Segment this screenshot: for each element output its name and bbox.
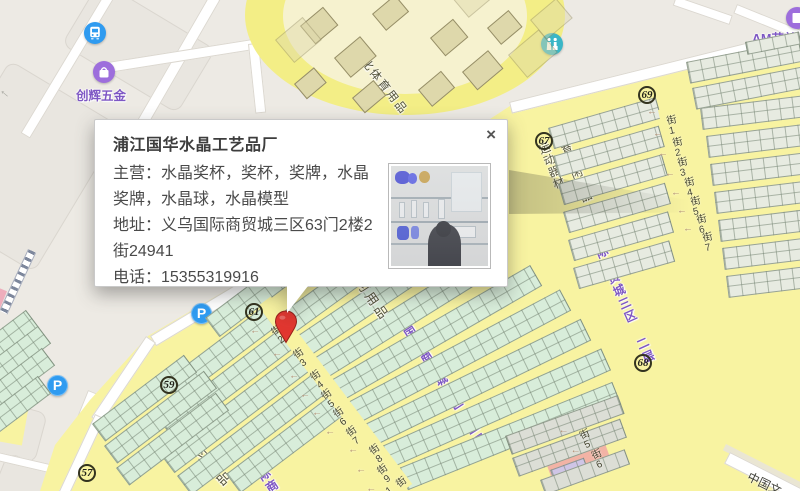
poi-label-hardware-store[interactable]: 创辉五金 xyxy=(76,85,126,104)
street-arrow-icon: ← xyxy=(300,389,311,400)
street-arrow-icon: ← xyxy=(289,370,300,381)
street-arrow-icon: ← xyxy=(272,348,283,359)
listing-photo[interactable] xyxy=(388,163,491,269)
gate-number: 67 xyxy=(535,132,553,150)
gate-number: 68 xyxy=(634,354,652,372)
hotel-icon[interactable] xyxy=(786,7,800,29)
street-arrow-icon: ← xyxy=(325,426,336,437)
street-arrow-icon: ← xyxy=(559,425,570,436)
street-arrow-icon: ← xyxy=(677,205,689,217)
street-arrow-icon: ← xyxy=(647,106,659,118)
bag-glyph xyxy=(93,61,115,83)
street-arrow-icon: ← xyxy=(356,464,367,475)
listing-title: 浦江国华水晶工艺品厂 xyxy=(113,131,491,155)
gate-number: 69 xyxy=(638,86,656,104)
close-icon[interactable]: × xyxy=(486,126,496,143)
info-window: 浦江国华水晶工艺品厂 × 主营：水晶奖杯，奖杯，奖牌，水晶奖牌，水晶球，水晶模型… xyxy=(94,119,508,287)
street-arrow-icon: ← xyxy=(312,407,323,418)
map-pin-icon[interactable] xyxy=(274,310,298,344)
listing-photo-image xyxy=(391,166,488,266)
listing-body: 主营：水晶奖杯，奖杯，奖牌，水晶奖牌，水晶球，水晶模型 地址：义乌国际商贸城三区… xyxy=(113,161,491,291)
street-arrow-icon: ← xyxy=(683,223,695,235)
road xyxy=(673,0,733,25)
street-arrow-icon: ← xyxy=(658,148,670,160)
listing-phone: 电话：15355319916 xyxy=(113,269,259,286)
street-arrow-icon: ← xyxy=(653,128,665,140)
map-canvas[interactable]: ← 文化体育用品 体育休闲用品 运动器材 办公学习用品 办公学习用品 国际商贸城… xyxy=(0,0,800,491)
hotel-glyph xyxy=(786,7,800,29)
gate-number: 61 xyxy=(245,303,263,321)
info-window-box: 浦江国华水晶工艺品厂 × 主营：水晶奖杯，奖杯，奖牌，水晶奖牌，水晶球，水晶模型… xyxy=(94,119,508,287)
info-window-pointer xyxy=(287,286,308,313)
street-arrow-icon: ← xyxy=(671,187,683,199)
listing-business: 主营：水晶奖杯，奖杯，奖牌，水晶奖牌，水晶球，水晶模型 xyxy=(113,165,369,208)
street-arrow-icon: ← xyxy=(665,168,677,180)
street-arrow-icon: ← xyxy=(571,445,582,456)
street-arrow-icon: ← xyxy=(348,444,359,455)
gate-number: 57 xyxy=(78,464,96,482)
train-glyph xyxy=(84,22,106,44)
listing-details: 主营：水晶奖杯，奖杯，奖牌，水晶奖牌，水晶球，水晶模型 地址：义乌国际商贸城三区… xyxy=(113,161,382,291)
metro-station-icon[interactable] xyxy=(84,22,106,44)
gate-number: 59 xyxy=(160,376,178,394)
listing-address: 地址：义乌国际商贸城三区63门2楼2街24941 xyxy=(113,217,373,260)
shop-bag-icon[interactable] xyxy=(93,61,115,83)
street-arrow-icon: ← xyxy=(366,484,377,491)
street-arrow-icon: ← xyxy=(250,325,261,336)
